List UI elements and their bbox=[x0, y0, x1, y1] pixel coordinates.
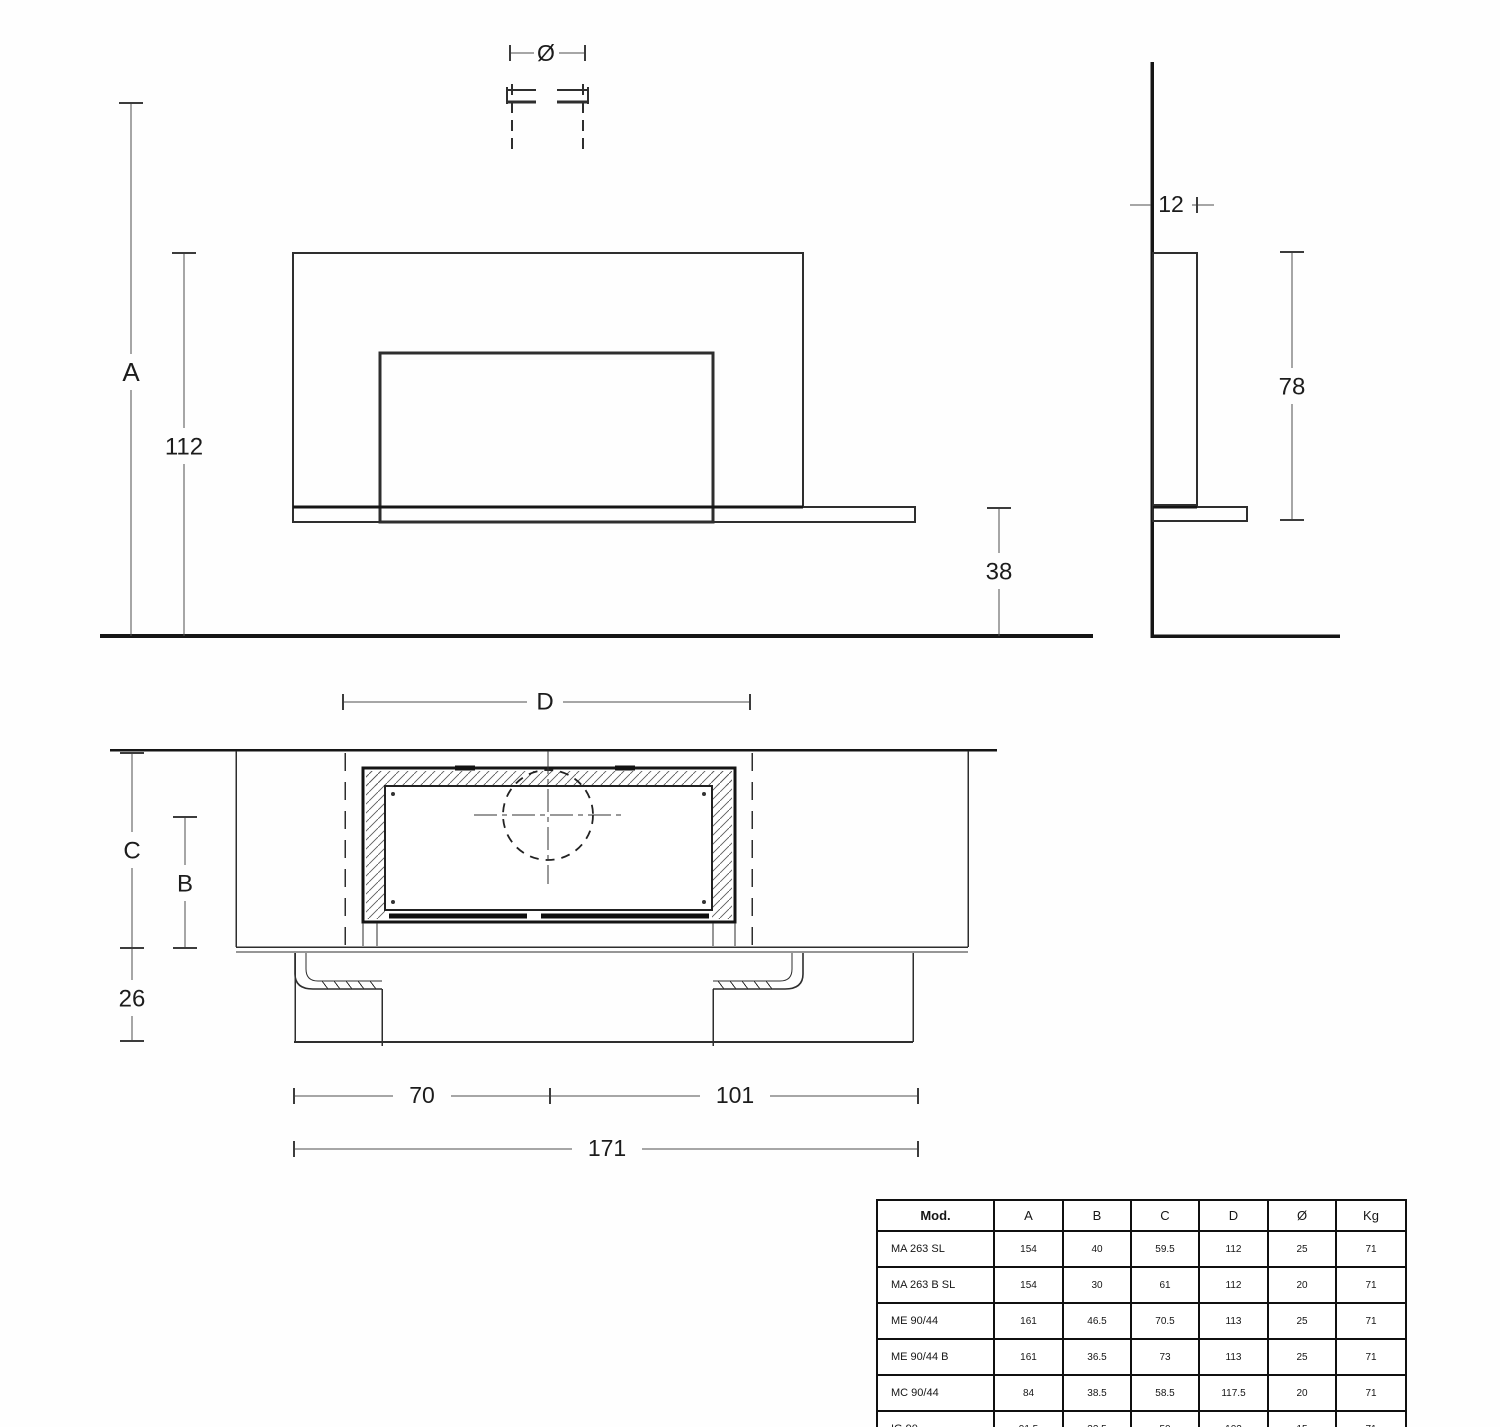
value-cell: 25 bbox=[1268, 1303, 1336, 1339]
dim-wall-to-front-label: C bbox=[123, 837, 140, 864]
side-bracket-left bbox=[295, 953, 382, 989]
dim-hearth-front-depth-label: 26 bbox=[119, 985, 146, 1012]
spec-table-head: Mod.ABCDØKg bbox=[877, 1200, 1406, 1231]
table-row: ME 90/4416146.570.51132571 bbox=[877, 1303, 1406, 1339]
value-cell: 71 bbox=[1336, 1375, 1406, 1411]
dim-width-split: 70 101 bbox=[294, 1079, 918, 1113]
value-cell: 71 bbox=[1336, 1411, 1406, 1427]
model-cell: MA 263 B SL bbox=[877, 1267, 994, 1303]
table-row: MA 263 B SL15430611122071 bbox=[877, 1267, 1406, 1303]
column-header: C bbox=[1131, 1200, 1199, 1231]
dim-right-width-label: 101 bbox=[716, 1082, 754, 1108]
front-panel bbox=[293, 253, 803, 507]
firebox-opening bbox=[380, 353, 713, 522]
value-cell: 112 bbox=[1199, 1231, 1268, 1267]
dim-niche-width: D bbox=[343, 685, 750, 719]
dim-panel-top-height-label: 112 bbox=[165, 433, 203, 460]
dim-axis-to-front-label: B bbox=[177, 870, 193, 897]
value-cell: 38.5 bbox=[1063, 1375, 1131, 1411]
dim-left-width-label: 70 bbox=[409, 1082, 435, 1108]
value-cell: 71 bbox=[1336, 1231, 1406, 1267]
dim-total-width: 171 bbox=[294, 1132, 918, 1166]
dim-hearth-front-depth: 26 bbox=[103, 949, 161, 1042]
value-cell: 36.5 bbox=[1063, 1339, 1131, 1375]
spec-table-body: MA 263 SL1544059.51122571MA 263 B SL1543… bbox=[877, 1231, 1406, 1427]
column-header: Ø bbox=[1268, 1200, 1336, 1231]
value-cell: 71 bbox=[1336, 1339, 1406, 1375]
dim-panel-top-height: 112 bbox=[156, 253, 212, 636]
refractory-hatch-top bbox=[366, 771, 732, 786]
value-cell: 61 bbox=[1131, 1267, 1199, 1303]
dim-flue-diameter: Ø bbox=[510, 40, 585, 66]
value-cell: 161 bbox=[994, 1303, 1063, 1339]
value-cell: 84 bbox=[994, 1375, 1063, 1411]
value-cell: 102 bbox=[1199, 1411, 1268, 1427]
dim-niche-width-label: D bbox=[536, 688, 553, 715]
dim-wall-to-front: C bbox=[115, 752, 149, 949]
front-view: Ø A 112 38 bbox=[100, 40, 1093, 636]
firebox-plan bbox=[363, 768, 735, 946]
model-cell: ME 90/44 bbox=[877, 1303, 994, 1339]
dim-panel-depth: 12 bbox=[1130, 191, 1214, 217]
value-cell: 58.5 bbox=[1131, 1375, 1199, 1411]
dim-panel-height: 78 bbox=[1265, 252, 1319, 520]
value-cell: 113 bbox=[1199, 1303, 1268, 1339]
value-cell: 15 bbox=[1268, 1411, 1336, 1427]
value-cell: 46.5 bbox=[1063, 1303, 1131, 1339]
value-cell: 112 bbox=[1199, 1267, 1268, 1303]
plan-view: D C B 26 bbox=[103, 685, 997, 1166]
value-cell: 20 bbox=[1268, 1267, 1336, 1303]
refractory-hatch-right bbox=[712, 771, 732, 919]
value-cell: 113 bbox=[1199, 1339, 1268, 1375]
value-cell: 32.5 bbox=[1063, 1411, 1131, 1427]
dim-axis-to-front: B bbox=[169, 816, 201, 949]
dim-overall-height: A bbox=[116, 103, 146, 636]
panel-side-profile bbox=[1153, 253, 1197, 505]
dim-overall-height-label: A bbox=[122, 357, 140, 387]
column-header: A bbox=[994, 1200, 1063, 1231]
model-cell: ME 90/44 B bbox=[877, 1339, 994, 1375]
value-cell: 25 bbox=[1268, 1231, 1336, 1267]
side-bracket-right bbox=[713, 953, 803, 989]
dim-flue-diameter-label: Ø bbox=[537, 40, 555, 66]
column-header: D bbox=[1199, 1200, 1268, 1231]
hearth-outline bbox=[294, 953, 913, 1046]
column-header: B bbox=[1063, 1200, 1131, 1231]
table-row: ME 90/44 B16136.5731132571 bbox=[877, 1339, 1406, 1375]
value-cell: 40 bbox=[1063, 1231, 1131, 1267]
model-cell: IG 90 bbox=[877, 1411, 994, 1427]
dim-shelf-height: 38 bbox=[973, 508, 1025, 636]
bench-shelf bbox=[293, 507, 915, 522]
value-cell: 30 bbox=[1063, 1267, 1131, 1303]
value-cell: 154 bbox=[994, 1267, 1063, 1303]
shelf-side-profile bbox=[1153, 507, 1247, 521]
table-row: MA 263 SL1544059.51122571 bbox=[877, 1231, 1406, 1267]
value-cell: 59.5 bbox=[1131, 1231, 1199, 1267]
dim-panel-depth-label: 12 bbox=[1158, 191, 1184, 217]
dim-panel-height-label: 78 bbox=[1279, 373, 1306, 400]
value-cell: 117.5 bbox=[1199, 1375, 1268, 1411]
value-cell: 71 bbox=[1336, 1267, 1406, 1303]
table-row: IG 9091.532.5501021571 bbox=[877, 1411, 1406, 1427]
spec-table: Mod.ABCDØKg MA 263 SL1544059.51122571MA … bbox=[876, 1199, 1407, 1427]
model-cell: MC 90/44 bbox=[877, 1375, 994, 1411]
value-cell: 20 bbox=[1268, 1375, 1336, 1411]
column-header: Kg bbox=[1336, 1200, 1406, 1231]
refractory-hatch-left bbox=[366, 771, 385, 919]
value-cell: 73 bbox=[1131, 1339, 1199, 1375]
value-cell: 71 bbox=[1336, 1303, 1406, 1339]
flue-pipe bbox=[506, 84, 589, 152]
model-cell: MA 263 SL bbox=[877, 1231, 994, 1267]
value-cell: 70.5 bbox=[1131, 1303, 1199, 1339]
dim-shelf-height-label: 38 bbox=[986, 558, 1013, 585]
table-header-row: Mod.ABCDØKg bbox=[877, 1200, 1406, 1231]
value-cell: 25 bbox=[1268, 1339, 1336, 1375]
value-cell: 91.5 bbox=[994, 1411, 1063, 1427]
value-cell: 161 bbox=[994, 1339, 1063, 1375]
fireplace-technical-drawing-page: Ø A 112 38 bbox=[0, 0, 1500, 1427]
side-view: 12 78 bbox=[1130, 62, 1340, 638]
value-cell: 154 bbox=[994, 1231, 1063, 1267]
dim-total-width-label: 171 bbox=[588, 1135, 626, 1161]
table-row: MC 90/448438.558.5117.52071 bbox=[877, 1375, 1406, 1411]
column-header: Mod. bbox=[877, 1200, 994, 1231]
value-cell: 50 bbox=[1131, 1411, 1199, 1427]
